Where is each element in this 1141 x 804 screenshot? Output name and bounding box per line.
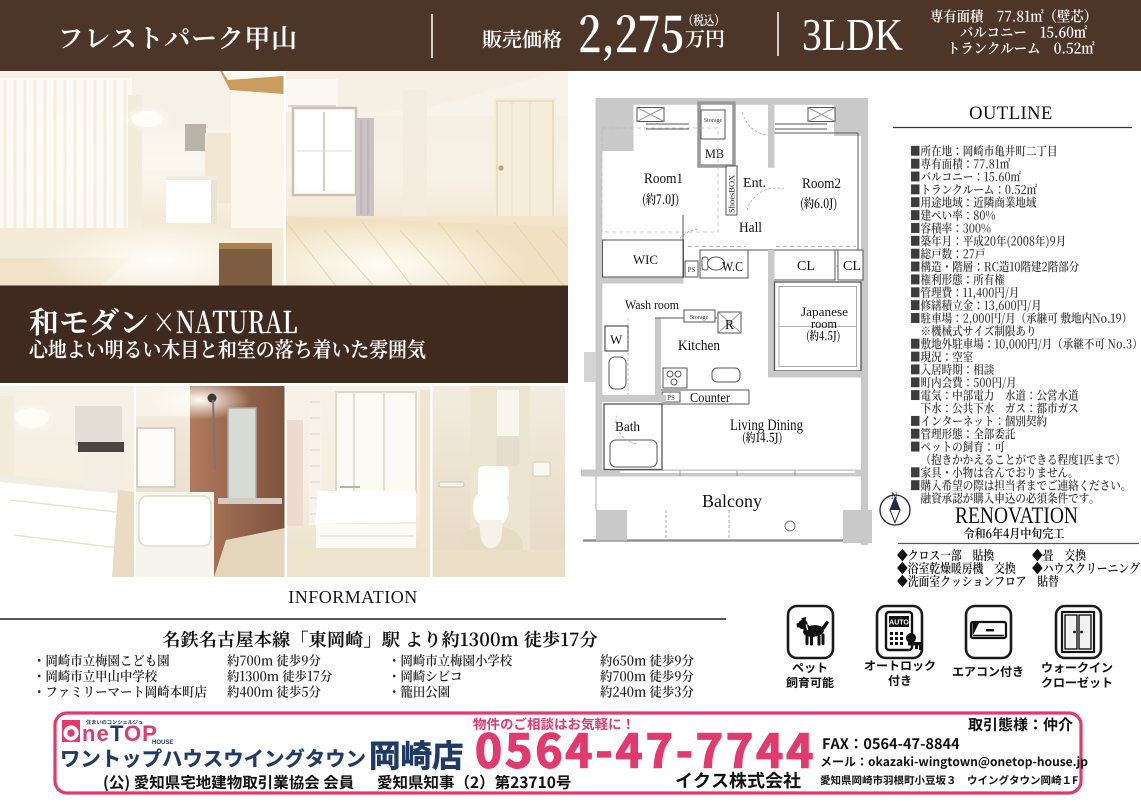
svg-text:PS: PS (688, 266, 696, 274)
svg-text:N: N (891, 491, 898, 501)
svg-text:3LDK: 3LDK (802, 10, 903, 60)
svg-text:CL: CL (843, 259, 861, 274)
svg-text:INFORMATION: INFORMATION (288, 587, 418, 607)
svg-text:R: R (725, 317, 734, 332)
svg-text:PS: PS (667, 394, 675, 402)
svg-text:RENOVATION: RENOVATION (955, 503, 1078, 528)
svg-text:Storage: Storage (690, 315, 709, 321)
svg-text:ShoesBOX: ShoesBOX (727, 175, 737, 213)
svg-text:AUTO: AUTO (889, 620, 909, 627)
svg-text:CL: CL (797, 259, 815, 274)
svg-text:HOUSE: HOUSE (152, 740, 173, 746)
svg-text:Counter: Counter (690, 390, 730, 405)
svg-text:Ent.: Ent. (743, 176, 766, 191)
svg-text:Wash room: Wash room (625, 297, 679, 312)
svg-text:ne: ne (82, 721, 110, 746)
svg-text:W: W (610, 332, 623, 347)
svg-text:room: room (811, 316, 837, 331)
svg-text:Living Dining: Living Dining (730, 417, 803, 434)
svg-text:Balcony: Balcony (702, 491, 762, 511)
svg-text:T: T (110, 721, 124, 746)
svg-text:Bath: Bath (615, 420, 640, 435)
svg-text:Room1: Room1 (644, 171, 683, 187)
svg-text:OUTLINE: OUTLINE (969, 104, 1053, 124)
svg-text:Storage: Storage (704, 118, 723, 124)
svg-text:Kitchen: Kitchen (678, 338, 721, 354)
svg-text:Hall: Hall (739, 220, 762, 236)
svg-text:Room2: Room2 (802, 176, 841, 192)
svg-text:WIC: WIC (633, 253, 658, 267)
svg-text:W.C: W.C (722, 260, 743, 275)
svg-text:MB: MB (705, 146, 724, 161)
